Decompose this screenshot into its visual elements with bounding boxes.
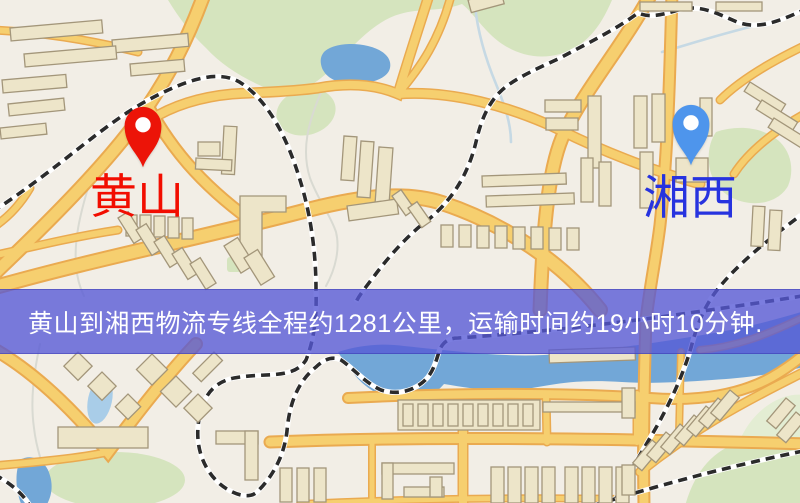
destination-marker[interactable] <box>669 100 714 167</box>
map-pin-icon <box>669 100 714 167</box>
map: 黄山到湘西物流专线全程约1281公里，运输时间约19小时10分钟. 黄山 湘西 <box>0 0 800 503</box>
map-pin-icon <box>121 102 166 169</box>
origin-marker[interactable] <box>121 102 166 169</box>
map-canvas <box>0 0 800 503</box>
route-info-banner: 黄山到湘西物流专线全程约1281公里，运输时间约19小时10分钟. <box>0 289 800 354</box>
route-info-text: 黄山到湘西物流专线全程约1281公里，运输时间约19小时10分钟. <box>28 304 763 340</box>
origin-label: 黄山 <box>90 175 184 222</box>
destination-label: 湘西 <box>643 176 737 223</box>
